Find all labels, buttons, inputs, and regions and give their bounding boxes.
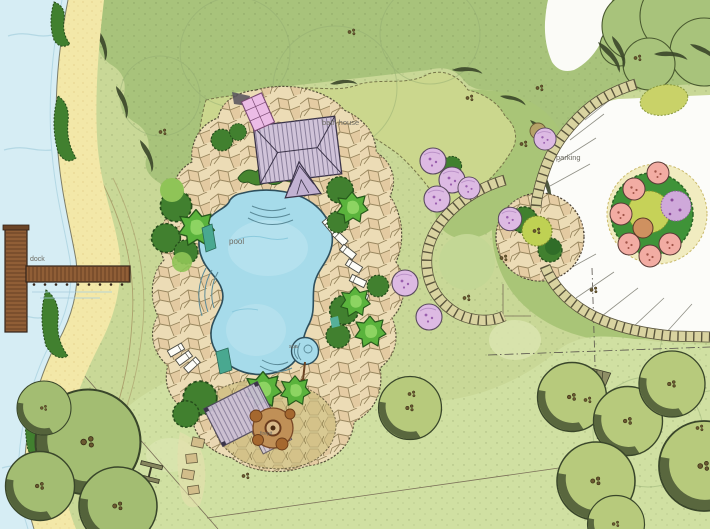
parking-label: parking xyxy=(556,153,581,162)
firepit-label: firepit xyxy=(260,431,273,437)
boulder-seat xyxy=(276,438,288,450)
pink-tree-icon xyxy=(639,245,661,267)
dock-label: dock xyxy=(30,256,45,263)
pink-tree-icon xyxy=(610,203,632,225)
pink-tree-icon xyxy=(659,233,681,255)
purple-flower-mass xyxy=(661,191,691,221)
boulder-seat xyxy=(285,409,295,419)
pink-tree-icon xyxy=(623,178,645,200)
lime-tree-icon xyxy=(522,216,552,246)
lawn-light-patch xyxy=(489,320,541,360)
pink-tree-icon xyxy=(647,162,669,184)
spa-label: spa xyxy=(289,344,299,350)
firepit xyxy=(250,408,295,450)
boulder-seat xyxy=(250,410,262,422)
site-plan-page: dock pool spa bath house parking firepit xyxy=(0,0,710,529)
lawn-knoll xyxy=(439,234,495,290)
site-plan-canvas: dock pool spa bath house parking firepit xyxy=(0,0,710,529)
pool-label: pool xyxy=(229,237,244,246)
tan-tree-icon xyxy=(633,218,653,238)
bath-house-label: bath house xyxy=(322,118,359,127)
